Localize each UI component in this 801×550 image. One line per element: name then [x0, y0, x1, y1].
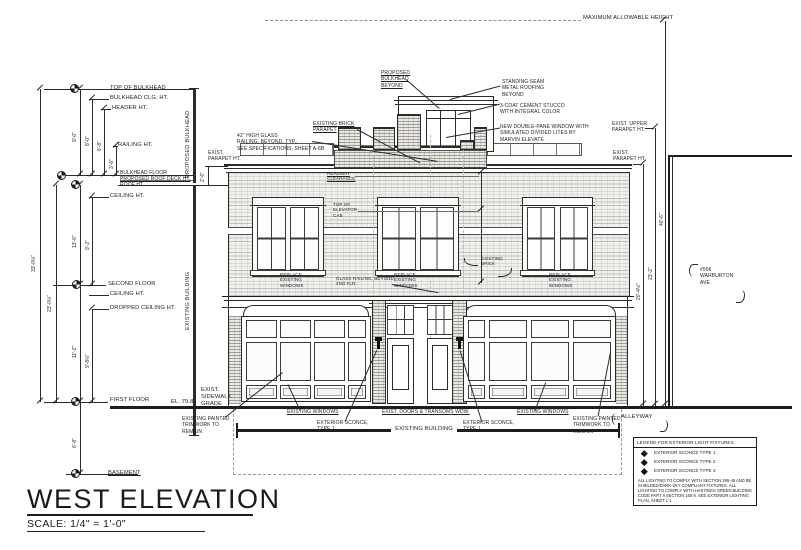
transom — [573, 320, 611, 338]
dim-line — [92, 99, 93, 175]
note-exist-parapet-ht-left: EXIST. PARAPET HT. — [208, 150, 241, 163]
legend-title: LEGEND FOR EXTERIOR LIGHT FIXTURES — [634, 438, 756, 448]
base-panel — [489, 385, 527, 399]
level-line — [89, 295, 109, 296]
ref-cap — [189, 88, 199, 89]
note-sconce-left: EXTERIOR SCONCE, TYPE 1 — [317, 420, 368, 433]
note-doors-transoms: EXIST. DOORS & TRANSOMS WDW. — [382, 409, 470, 415]
dim-right-upper: 23'-2" — [648, 267, 654, 280]
door-transom — [387, 305, 414, 335]
display-window — [468, 342, 485, 381]
datum-marker — [71, 469, 80, 478]
dim-bulkhead-clg: 8'-0" — [85, 136, 91, 146]
title-underline — [27, 514, 253, 516]
dim-line — [104, 109, 105, 175]
transom — [489, 320, 527, 338]
alleyway-brace — [660, 420, 668, 432]
note-glass-railing: 42" HIGH GLASS RAILING, BEYOND, TYP., SE… — [237, 133, 324, 152]
door-panel — [392, 345, 409, 390]
level-bulkhead-clg: BULKHEAD CLG. HT. — [110, 95, 168, 102]
ref-label-proposed-bulkhead: PROPOSED BULKHEAD — [185, 111, 191, 178]
display-window — [531, 342, 569, 381]
double-hung-window — [527, 207, 555, 270]
display-window — [246, 342, 277, 381]
datum-marker — [71, 180, 80, 189]
level-ceiling1: CEILING HT. — [110, 291, 145, 298]
datum-marker — [70, 84, 79, 93]
display-window — [280, 342, 311, 381]
level-line — [89, 99, 109, 100]
legend-item: EXTERIOR SCONCE TYPE 2 — [654, 459, 715, 464]
facade-corner-brick — [616, 316, 627, 404]
note-alleyway: ALLEYWAY — [621, 414, 652, 421]
level-railing: RAILING HT. — [118, 142, 153, 149]
parapet-cap — [226, 172, 630, 173]
elevation-sheet: MAXIMUM ALLOWABLE HEIGHT 33'-0½" 23'-0½"… — [0, 0, 801, 550]
dim-bulkhead-total: 9'-0" — [72, 132, 78, 142]
level-first-floor: FIRST FLOOR — [110, 397, 149, 404]
window-lintel — [375, 205, 461, 206]
alleyway-brace — [612, 413, 619, 425]
sconce-fixture — [456, 337, 463, 341]
display-window — [489, 342, 527, 381]
dim-line — [655, 128, 656, 406]
transom — [348, 320, 366, 338]
double-hung-window — [560, 207, 588, 270]
dim-line — [56, 185, 57, 402]
basement-outline — [233, 409, 622, 475]
neighbor-brace — [689, 264, 698, 277]
ref-label-existing-building: EXISTING BUILDING — [185, 272, 191, 330]
bulkhead-cornice — [394, 100, 498, 101]
display-window — [314, 342, 345, 381]
legend-item: EXTERIOR SCONCE TYPE 3 — [654, 468, 715, 473]
window-lintel — [520, 205, 595, 206]
note-existing-windows-left: EXISTING WINDOWS — [287, 409, 339, 415]
note-replace-windows-center: REPLACE EXISTING WINDOWS — [394, 272, 417, 288]
existing-building-dim-label: EXISTING BUILDING — [393, 426, 455, 433]
dim-second-first: 11'-2" — [72, 346, 78, 358]
base-panel — [531, 385, 569, 399]
neighbor-edge — [668, 155, 670, 407]
sconce-symbol — [641, 450, 647, 456]
note-new-window: NEW DOUBLE-PANE WINDOW WITH SIMULATED DI… — [500, 124, 589, 143]
dim-line — [80, 402, 81, 474]
dim-line — [80, 285, 81, 402]
note-sidewalk-grade: EXIST. SIDEWALK GRADE — [201, 387, 232, 409]
note-sconce-right: EXTERIOR SCONCE, TYPE 1 — [463, 420, 514, 433]
dim-line — [643, 164, 644, 406]
dim-line — [80, 89, 81, 175]
max-height-dim-line — [665, 21, 666, 406]
parapet-ext-line — [205, 166, 228, 167]
cornice-line — [224, 300, 632, 301]
bulkhead-cornice — [395, 104, 497, 105]
dim-line — [80, 185, 81, 285]
note-railing-beyond: GLASS RAILING, BEYOND 2ND FLR. — [336, 276, 394, 287]
dim-dropped: 9'-8½" — [85, 354, 91, 368]
dim-parapet: 2'-6" — [200, 172, 206, 182]
dim-first-roof: 23'-0½" — [47, 295, 53, 312]
sconce-symbol — [641, 459, 647, 465]
window-lintel — [250, 205, 326, 206]
crenellation-step — [460, 140, 474, 150]
transom — [280, 320, 311, 338]
base-panel — [280, 385, 311, 399]
dim-basement: 6'-8" — [72, 438, 78, 448]
note-painted-trim-left: EXISTING PAINTED TRIMWORK TO REMAIN — [182, 416, 230, 435]
level-ceiling2: CEILING HT. — [110, 193, 145, 200]
note-existing-brick: EXISTING BRICK — [481, 256, 503, 267]
bulkhead-window-muntin — [440, 111, 441, 148]
bar-end — [236, 423, 238, 438]
scale-underline — [27, 531, 205, 532]
double-hung-window — [290, 207, 319, 270]
bulkhead-window-muntin — [455, 111, 456, 148]
note-elevator-cab: TOP OF ELEVATOR CAB — [333, 202, 357, 218]
note-exist-upper-parapet: EXIST. UPPER PARAPET HT. — [612, 121, 647, 134]
level-roof: ROOF HT. — [120, 182, 144, 188]
note-exist-parapet-right: EXIST. PARAPET HT. — [613, 150, 646, 163]
double-hung-window — [420, 207, 454, 270]
display-window — [348, 342, 366, 381]
drawing-title: WEST ELEVATION — [27, 484, 281, 515]
door-panel — [432, 345, 448, 390]
datum-marker — [57, 171, 66, 180]
level-dropped-ceiling: DROPPED CEILING HT. — [110, 305, 176, 312]
roof-railing-right — [487, 143, 582, 156]
dim-roof-second: 13'-6" — [72, 235, 78, 248]
datum-marker — [72, 280, 81, 289]
dim-line — [92, 309, 93, 402]
note-stucco: 3-COAT CEMENT STUCCO WITH INTEGRAL COLOR — [500, 103, 565, 116]
sconce-symbol — [641, 468, 647, 474]
sconce-fixture — [375, 337, 382, 341]
drawing-scale: SCALE: 1/4" = 1'-0" — [27, 518, 126, 530]
transom — [531, 320, 569, 338]
neighbor-edge-inner — [672, 156, 673, 406]
dim-line — [40, 89, 41, 402]
neighbor-roof-line — [668, 155, 792, 157]
leader-line — [355, 176, 479, 177]
level-basement: BASEMENT — [108, 470, 141, 477]
note-replace-windows-left: REPLACE EXISTING WINDOWS — [280, 272, 303, 288]
facade-edge — [627, 296, 628, 407]
double-hung-window — [257, 207, 286, 270]
dim-railing: 3'-6" — [109, 159, 115, 169]
transom — [314, 320, 345, 338]
dim-line — [208, 166, 209, 186]
datum-marker — [71, 397, 80, 406]
note-replace-windows-right: REPLACE EXISTING WINDOWS — [549, 272, 572, 288]
transom — [468, 320, 485, 338]
leader-line — [645, 128, 654, 129]
note-headway: HEADWAY CLEARANCE — [327, 171, 355, 182]
ref-line-proposed-bulkhead — [193, 88, 196, 183]
door-transom — [427, 305, 453, 335]
dim-right-parapet: 20'-4½" — [636, 283, 642, 300]
note-existing-brick-parapet: EXISTING BRICK PARAPET — [313, 121, 354, 134]
level-second-floor: SECOND FLOOR — [108, 281, 156, 288]
ref-cap — [189, 435, 199, 436]
dim-total: 33'-0½" — [31, 255, 37, 272]
legend-box: LEGEND FOR EXTERIOR LIGHT FIXTURES EXTER… — [633, 437, 757, 506]
note-existing-windows-right: EXISTING WINDOWS — [517, 409, 569, 415]
bulkhead-window-rail — [427, 118, 470, 119]
leader-line — [633, 164, 642, 165]
note-standing-seam: STANDING SEAM METAL ROOFING BEYOND — [502, 79, 544, 98]
level-header: HEADER HT. — [112, 105, 147, 112]
max-height-line — [265, 20, 581, 21]
level-line — [93, 309, 109, 310]
level-line — [89, 197, 109, 198]
legend-note: ALL LIGHTING TO COMPLY WITH SECTION 295-… — [638, 478, 752, 504]
leader-line — [358, 211, 479, 212]
note-neighbor-address: #506 WARBURTON AVE. — [700, 267, 733, 286]
neighbor-brace — [736, 290, 745, 303]
crenellation-tower — [397, 114, 421, 150]
level-top-of-bulkhead: TOP OF BULKHEAD — [110, 85, 166, 92]
base-panel — [573, 385, 611, 399]
dim-header: 6'-8" — [97, 141, 103, 151]
dim-max-height: 40'-6" — [659, 213, 665, 226]
tick — [37, 397, 43, 403]
legend-item: EXTERIOR SCONCE TYPE 1 — [654, 450, 715, 455]
double-hung-window — [382, 207, 416, 270]
parapet-cap — [224, 168, 632, 169]
dim-ceiling2: 9'-2" — [85, 240, 91, 250]
dim-line — [92, 197, 93, 285]
transom — [246, 320, 277, 338]
base-panel — [314, 385, 345, 399]
sidewalk-elevation: EL. 79.8 — [171, 399, 193, 406]
